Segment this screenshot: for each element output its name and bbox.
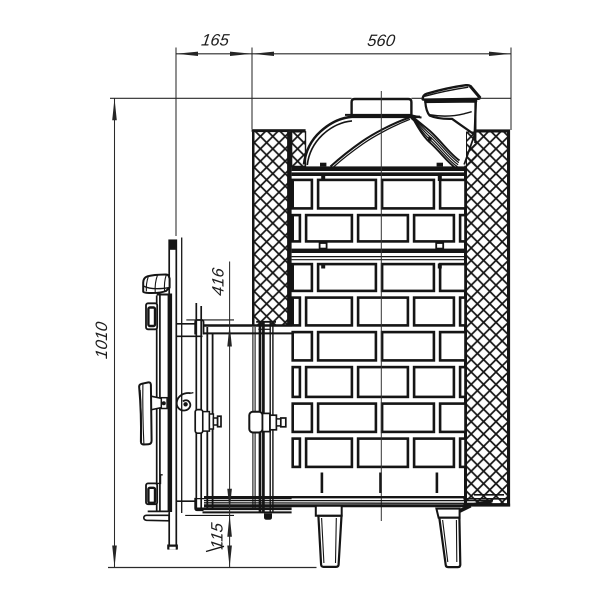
svg-text:416: 416 bbox=[208, 266, 227, 297]
svg-text:165: 165 bbox=[200, 31, 231, 50]
svg-text:1010: 1010 bbox=[92, 320, 111, 360]
svg-text:115: 115 bbox=[207, 521, 226, 551]
svg-text:560: 560 bbox=[366, 31, 397, 50]
